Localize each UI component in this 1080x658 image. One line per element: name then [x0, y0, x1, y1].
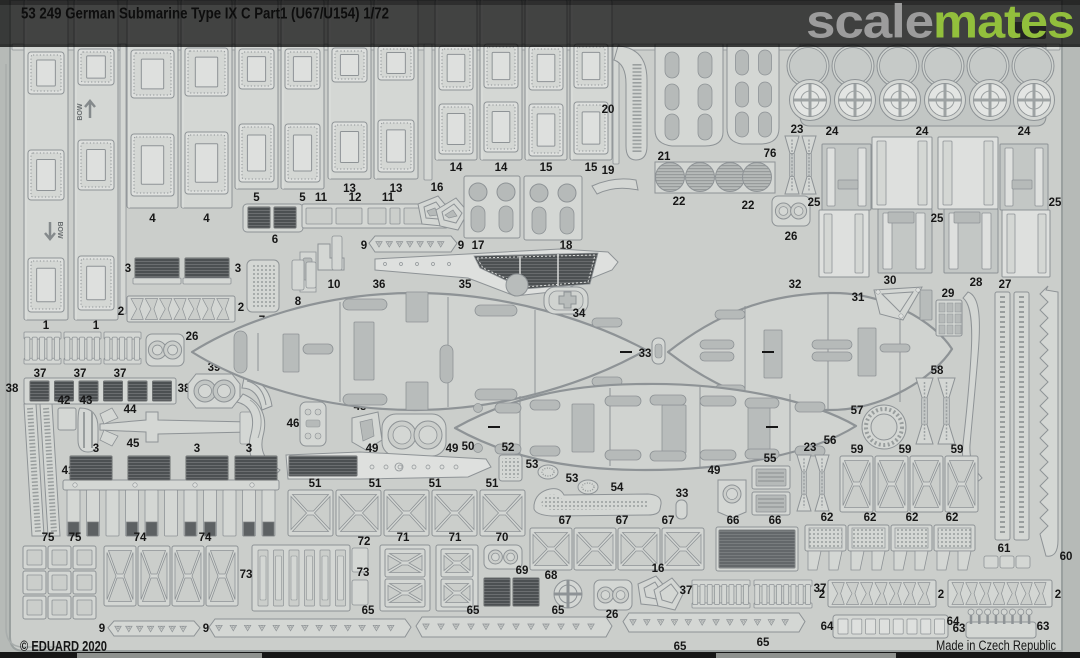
- svg-text:45: 45: [127, 438, 140, 450]
- svg-text:58: 58: [931, 365, 944, 377]
- svg-text:25: 25: [931, 213, 944, 225]
- svg-text:5: 5: [299, 192, 306, 204]
- svg-text:67: 67: [559, 515, 572, 527]
- svg-text:9: 9: [203, 623, 209, 635]
- svg-text:1: 1: [93, 320, 100, 332]
- svg-text:36: 36: [373, 279, 386, 291]
- svg-text:27: 27: [999, 279, 1012, 291]
- svg-text:31: 31: [852, 292, 865, 304]
- svg-text:52: 52: [502, 442, 515, 454]
- svg-text:53: 53: [566, 473, 579, 485]
- svg-text:73: 73: [357, 567, 370, 579]
- svg-text:15: 15: [540, 162, 553, 174]
- svg-text:44: 44: [124, 404, 137, 416]
- svg-text:63: 63: [953, 623, 966, 635]
- svg-text:62: 62: [946, 512, 959, 524]
- svg-text:59: 59: [851, 444, 864, 456]
- svg-text:61: 61: [998, 543, 1011, 555]
- svg-text:46: 46: [287, 418, 300, 430]
- svg-text:22: 22: [673, 196, 686, 208]
- svg-text:33: 33: [676, 488, 689, 500]
- svg-text:14: 14: [450, 162, 463, 174]
- svg-text:63: 63: [1037, 621, 1050, 633]
- svg-text:5: 5: [253, 192, 260, 204]
- svg-text:55: 55: [764, 453, 777, 465]
- svg-text:74: 74: [134, 532, 147, 544]
- svg-text:BOW: BOW: [56, 221, 63, 239]
- svg-text:51: 51: [369, 478, 382, 490]
- svg-text:3: 3: [194, 443, 200, 455]
- svg-text:59: 59: [899, 444, 912, 456]
- svg-text:6: 6: [272, 234, 278, 246]
- svg-text:11: 11: [315, 192, 328, 204]
- svg-text:65: 65: [552, 605, 565, 617]
- svg-text:3: 3: [93, 443, 99, 455]
- svg-text:42: 42: [58, 395, 71, 407]
- svg-text:16: 16: [431, 182, 444, 194]
- svg-text:71: 71: [449, 532, 462, 544]
- svg-text:22: 22: [742, 200, 755, 212]
- svg-text:25: 25: [1049, 197, 1062, 209]
- svg-text:9: 9: [99, 623, 105, 635]
- svg-text:23: 23: [791, 124, 804, 136]
- svg-text:57: 57: [851, 405, 864, 417]
- svg-text:11: 11: [382, 192, 395, 204]
- svg-text:67: 67: [616, 515, 629, 527]
- svg-text:66: 66: [727, 515, 740, 527]
- svg-text:30: 30: [884, 275, 897, 287]
- svg-text:14: 14: [495, 162, 508, 174]
- svg-text:2: 2: [118, 306, 124, 318]
- svg-text:21: 21: [658, 151, 671, 163]
- svg-text:53: 53: [526, 459, 539, 471]
- svg-text:56: 56: [824, 435, 837, 447]
- svg-text:23: 23: [804, 442, 817, 454]
- svg-text:53 249 German Submarine Type: 53 249 German Submarine Type IX C Part1 …: [21, 6, 389, 23]
- svg-text:Made in Czech Republic: Made in Czech Republic: [936, 638, 1056, 653]
- svg-text:scalemates: scalemates: [806, 0, 1074, 48]
- svg-text:32: 32: [789, 279, 802, 291]
- svg-text:2: 2: [819, 589, 825, 601]
- svg-text:33: 33: [639, 348, 652, 360]
- svg-text:73: 73: [240, 569, 253, 581]
- svg-text:12: 12: [349, 192, 362, 204]
- svg-text:38: 38: [6, 383, 19, 395]
- svg-text:3: 3: [235, 263, 241, 275]
- svg-text:20: 20: [602, 104, 615, 116]
- svg-text:24: 24: [1018, 126, 1031, 138]
- svg-text:26: 26: [186, 331, 199, 343]
- svg-text:29: 29: [942, 288, 955, 300]
- svg-text:16: 16: [652, 563, 665, 575]
- svg-text:71: 71: [397, 532, 410, 544]
- svg-text:54: 54: [611, 482, 624, 494]
- svg-text:15: 15: [585, 162, 598, 174]
- svg-text:60: 60: [1060, 551, 1073, 563]
- svg-text:BOW: BOW: [77, 103, 84, 121]
- svg-text:17: 17: [472, 240, 485, 252]
- svg-text:51: 51: [429, 478, 442, 490]
- svg-text:9: 9: [458, 240, 464, 252]
- svg-text:49: 49: [708, 465, 721, 477]
- svg-text:35: 35: [459, 279, 472, 291]
- svg-text:69: 69: [516, 565, 529, 577]
- svg-text:64: 64: [821, 621, 834, 633]
- svg-text:70: 70: [496, 532, 509, 544]
- svg-text:62: 62: [906, 512, 919, 524]
- svg-text:65: 65: [757, 637, 770, 649]
- svg-text:75: 75: [42, 532, 55, 544]
- svg-text:28: 28: [970, 277, 983, 289]
- svg-text:2: 2: [1055, 589, 1061, 601]
- svg-text:51: 51: [486, 478, 499, 490]
- svg-text:19: 19: [602, 165, 615, 177]
- svg-text:65: 65: [362, 605, 375, 617]
- svg-text:62: 62: [864, 512, 877, 524]
- svg-text:62: 62: [821, 512, 834, 524]
- svg-text:76: 76: [764, 148, 777, 160]
- svg-text:50: 50: [462, 441, 475, 453]
- svg-text:25: 25: [808, 197, 821, 209]
- svg-text:4: 4: [149, 213, 156, 225]
- svg-text:65: 65: [467, 605, 480, 617]
- svg-text:2: 2: [238, 302, 244, 314]
- svg-text:34: 34: [573, 308, 586, 320]
- svg-text:2: 2: [938, 589, 944, 601]
- svg-text:67: 67: [662, 515, 675, 527]
- svg-text:3: 3: [246, 443, 252, 455]
- svg-text:37: 37: [680, 585, 693, 597]
- svg-text:10: 10: [328, 279, 341, 291]
- svg-text:66: 66: [769, 515, 782, 527]
- svg-text:65: 65: [674, 641, 687, 653]
- svg-text:51: 51: [309, 478, 322, 490]
- svg-text:49: 49: [446, 443, 459, 455]
- svg-text:1: 1: [43, 320, 50, 332]
- svg-text:68: 68: [545, 570, 558, 582]
- svg-text:72: 72: [358, 536, 371, 548]
- svg-text:26: 26: [785, 231, 798, 243]
- svg-text:75: 75: [69, 532, 82, 544]
- svg-text:74: 74: [199, 532, 212, 544]
- svg-text:3: 3: [125, 263, 131, 275]
- svg-text:4: 4: [203, 213, 210, 225]
- svg-text:59: 59: [951, 444, 964, 456]
- svg-text:24: 24: [916, 126, 929, 138]
- svg-text:9: 9: [361, 240, 367, 252]
- svg-text:24: 24: [826, 126, 839, 138]
- svg-text:43: 43: [80, 395, 93, 407]
